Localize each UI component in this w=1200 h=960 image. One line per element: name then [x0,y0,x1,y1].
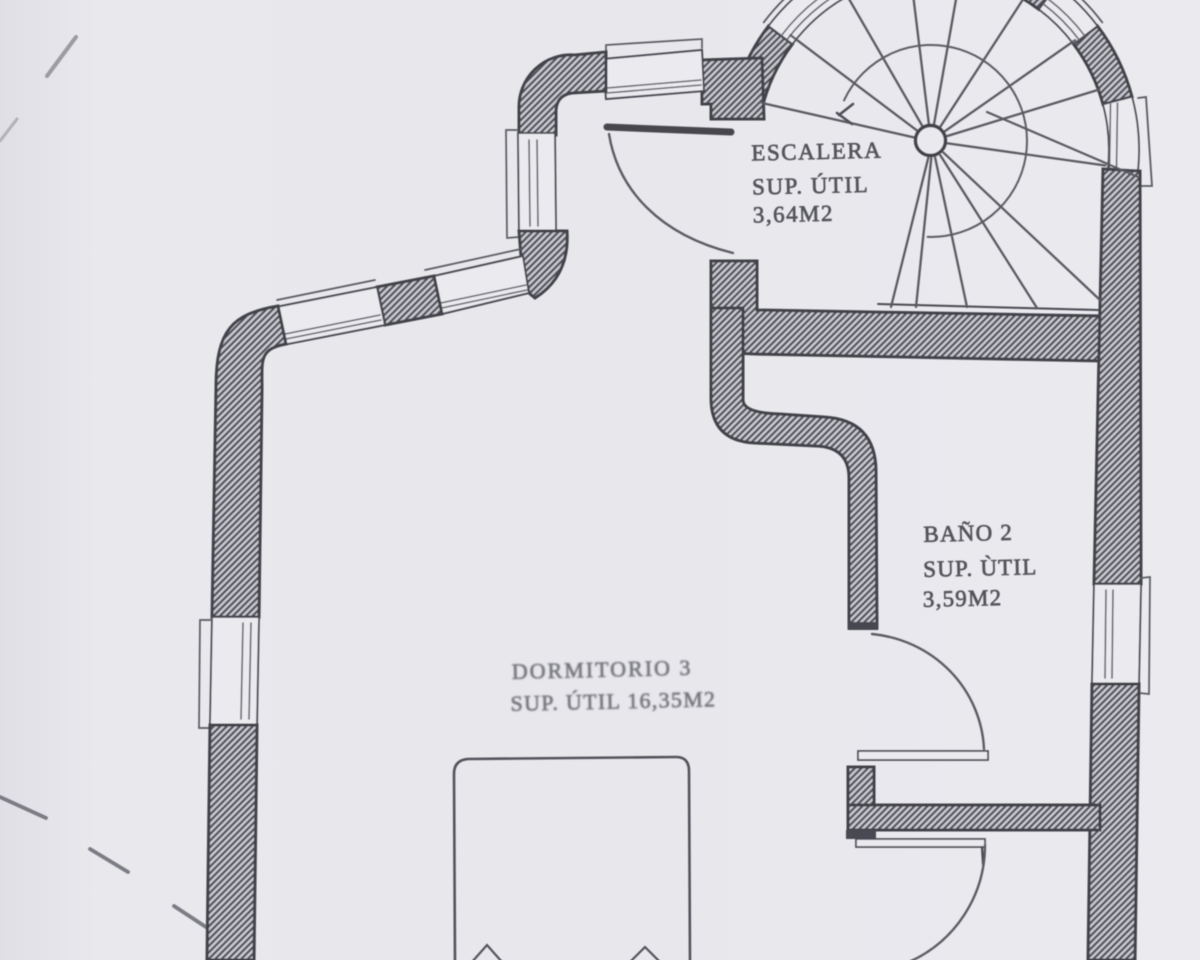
svg-text:SUP. ÙTIL: SUP. ÙTIL [923,553,1038,582]
svg-text:SUP. ÚTIL: SUP. ÚTIL [752,171,870,200]
svg-text:3,59M2: 3,59M2 [923,585,1003,612]
svg-text:DORMITORIO 3: DORMITORIO 3 [512,655,693,684]
svg-text:3,64M2: 3,64M2 [752,201,834,228]
svg-text:BAÑO 2: BAÑO 2 [923,520,1013,547]
svg-text:SUP. ÚTIL 16,35M2: SUP. ÚTIL 16,35M2 [510,686,716,716]
svg-text:ESCALERA: ESCALERA [751,138,882,166]
